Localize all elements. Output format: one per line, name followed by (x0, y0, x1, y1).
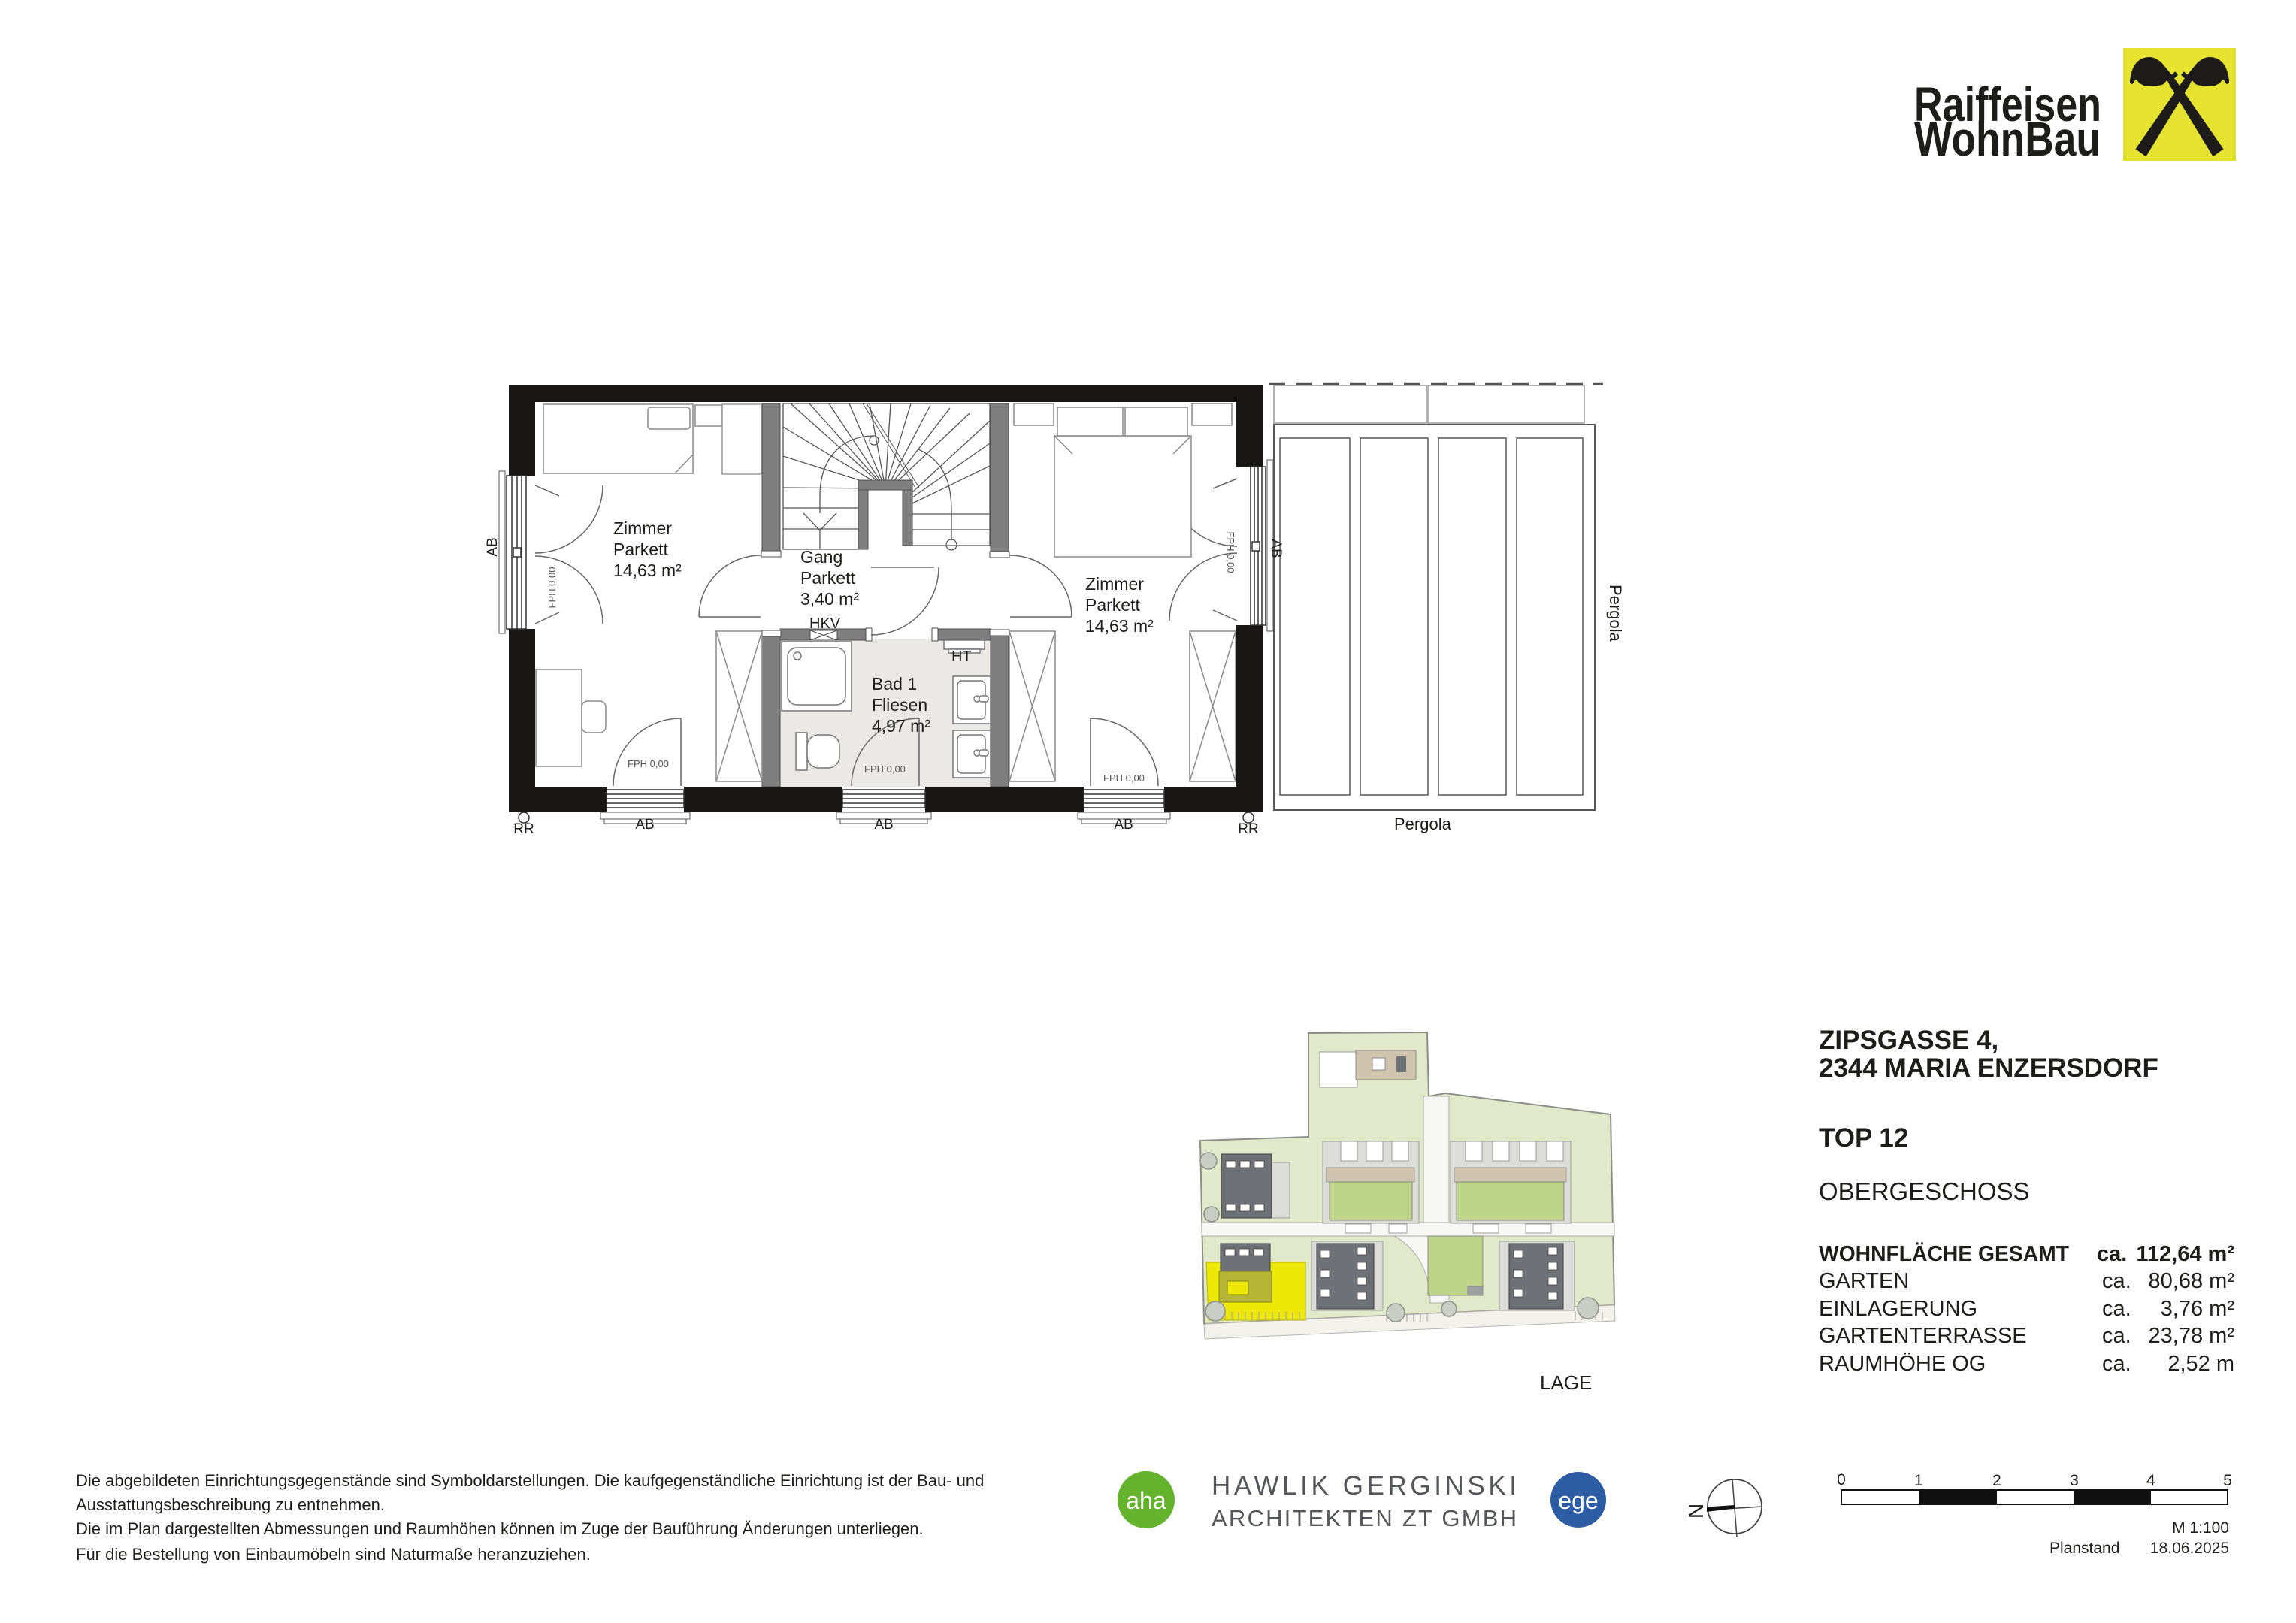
svg-text:ZIPSGASSE 4,: ZIPSGASSE 4, (1819, 1026, 1998, 1055)
svg-text:Fliesen: Fliesen (872, 695, 927, 715)
svg-text:ARCHITEKTEN ZT GMBH: ARCHITEKTEN ZT GMBH (1212, 1505, 1517, 1531)
svg-text:OBERGESCHOSS: OBERGESCHOSS (1819, 1177, 2030, 1205)
svg-text:112,64 m²: 112,64 m² (2136, 1242, 2234, 1266)
svg-text:RR: RR (1238, 821, 1258, 837)
svg-text:3: 3 (2070, 1472, 2079, 1489)
svg-text:AB: AB (635, 817, 654, 833)
svg-text:Parkett: Parkett (613, 539, 668, 559)
svg-text:RR: RR (513, 821, 534, 837)
svg-text:Ausstattungsbeschreibung zu en: Ausstattungsbeschreibung zu entnehmen. (76, 1495, 385, 1514)
svg-text:0: 0 (1837, 1471, 1846, 1489)
svg-text:1: 1 (1914, 1472, 1923, 1489)
svg-text:WOHNFLÄCHE GESAMT: WOHNFLÄCHE GESAMT (1819, 1241, 2069, 1266)
svg-text:Gang: Gang (800, 547, 842, 567)
svg-text:EINLAGERUNG: EINLAGERUNG (1819, 1297, 1977, 1321)
svg-text:3,40 m²: 3,40 m² (800, 589, 859, 609)
svg-text:aha: aha (1126, 1487, 1166, 1514)
svg-text:18.06.2025: 18.06.2025 (2150, 1540, 2229, 1557)
svg-text:AB: AB (1114, 817, 1133, 833)
svg-text:ege: ege (1558, 1487, 1598, 1514)
svg-text:Zimmer: Zimmer (613, 518, 672, 538)
svg-text:FPH 0,00: FPH 0,00 (546, 567, 558, 609)
svg-text:TOP 12: TOP 12 (1819, 1123, 1908, 1153)
svg-text:4: 4 (2146, 1472, 2155, 1489)
svg-text:2344 MARIA ENZERSDORF: 2344 MARIA ENZERSDORF (1819, 1053, 2158, 1083)
svg-text:Zimmer: Zimmer (1085, 574, 1144, 594)
svg-text:Für die Bestellung von Einbaum: Für die Bestellung von Einbaumöbeln sind… (76, 1545, 591, 1564)
svg-text:AB: AB (485, 537, 501, 556)
svg-text:3,76 m²: 3,76 m² (2161, 1297, 2235, 1321)
svg-text:ca.: ca. (2097, 1242, 2127, 1266)
svg-text:Bad 1: Bad 1 (872, 674, 917, 694)
svg-text:Pergola: Pergola (1606, 585, 1625, 642)
svg-text:80,68 m²: 80,68 m² (2149, 1269, 2235, 1293)
svg-text:FPH 0,00: FPH 0,00 (628, 758, 669, 769)
svg-text:Die im Plan dargestellten Abme: Die im Plan dargestellten Abmessungen un… (76, 1519, 924, 1538)
svg-text:14,63 m²: 14,63 m² (1085, 616, 1154, 636)
svg-text:AB: AB (874, 817, 893, 833)
svg-text:FPH 0,00: FPH 0,00 (1103, 772, 1145, 784)
svg-text:FPH 0,00: FPH 0,00 (1225, 532, 1236, 573)
svg-text:WohnBau: WohnBau (1914, 112, 2101, 166)
svg-text:Planstand: Planstand (2049, 1540, 2119, 1557)
svg-text:2: 2 (1992, 1472, 2001, 1489)
svg-text:ca.: ca. (2102, 1269, 2131, 1293)
svg-text:ca.: ca. (2102, 1352, 2131, 1376)
svg-text:GARTEN: GARTEN (1819, 1269, 1909, 1293)
svg-text:4,97 m²: 4,97 m² (872, 716, 930, 736)
svg-text:ca.: ca. (2102, 1297, 2131, 1321)
svg-text:ca.: ca. (2102, 1324, 2131, 1348)
svg-text:Parkett: Parkett (800, 568, 855, 588)
svg-text:M 1:100: M 1:100 (2172, 1519, 2229, 1537)
svg-text:AB: AB (1268, 539, 1284, 558)
svg-text:5: 5 (2223, 1472, 2232, 1489)
svg-text:FPH 0,00: FPH 0,00 (864, 763, 906, 775)
svg-text:LAGE: LAGE (1540, 1371, 1592, 1394)
svg-text:14,63 m²: 14,63 m² (613, 561, 682, 580)
svg-text:23,78 m²: 23,78 m² (2149, 1324, 2235, 1348)
svg-text:HKV: HKV (809, 615, 841, 632)
svg-text:RAUMHÖHE OG: RAUMHÖHE OG (1819, 1352, 1986, 1376)
svg-text:GARTENTERRASSE: GARTENTERRASSE (1819, 1324, 2027, 1348)
svg-text:HT: HT (951, 648, 972, 665)
svg-text:Die abgebildeten Einrichtungsg: Die abgebildeten Einrichtungsgegenstände… (76, 1471, 984, 1490)
svg-text:N: N (1684, 1504, 1708, 1519)
svg-text:Parkett: Parkett (1085, 595, 1140, 615)
svg-text:Pergola: Pergola (1394, 815, 1452, 833)
svg-text:2,52 m: 2,52 m (2167, 1352, 2234, 1376)
